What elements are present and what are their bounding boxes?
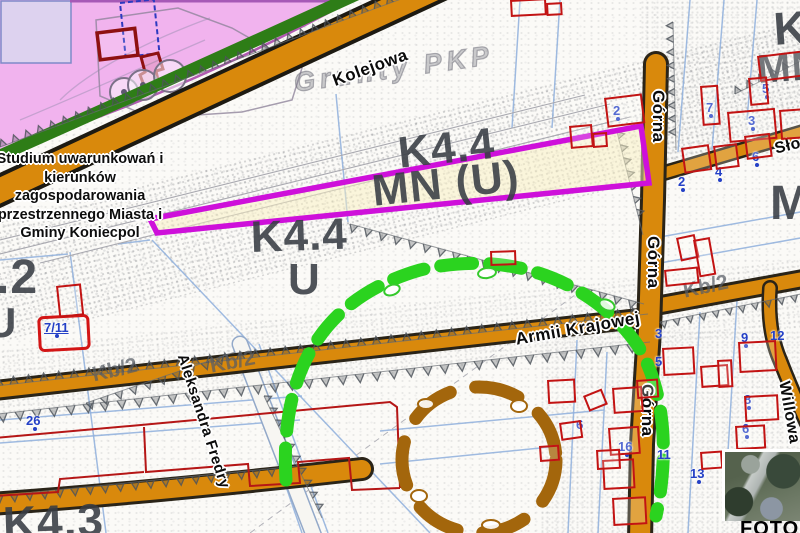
zone-label: K4.4 xyxy=(250,213,348,260)
building-outline xyxy=(700,450,723,469)
attribution-line: kierunków xyxy=(0,169,196,188)
zone-label: .2 xyxy=(0,254,38,302)
building-outline xyxy=(546,2,563,16)
building-outline xyxy=(664,266,700,286)
zone-label: U xyxy=(0,302,17,344)
building-outline xyxy=(490,250,517,266)
building-outline xyxy=(592,132,608,148)
street-label-armii-krajowej: Armii Krajowej xyxy=(514,308,642,350)
building-outline xyxy=(604,93,645,127)
building-outline xyxy=(583,389,608,412)
zone-label: U xyxy=(288,258,321,302)
road-class-label: Kb/2 xyxy=(90,354,140,388)
building-outline xyxy=(717,359,733,388)
building-outline xyxy=(744,133,773,160)
building-outline xyxy=(700,85,721,126)
building-outline xyxy=(612,496,647,526)
building-outline xyxy=(596,449,621,470)
building-outline xyxy=(510,0,547,17)
parcel-number: 26 xyxy=(26,413,40,428)
road-class-label: Kb/2 xyxy=(208,346,257,378)
building-outline xyxy=(738,340,778,373)
building-outline xyxy=(713,143,740,170)
attribution-line: przestrzennego Miasta i xyxy=(0,206,196,225)
street-label-gorna-mid: Górna xyxy=(643,236,663,289)
zone-label: MN (U) xyxy=(370,155,522,214)
parcel-number: 7/11 xyxy=(44,320,69,335)
building-outline xyxy=(744,394,779,422)
parcel-point xyxy=(755,163,759,167)
building-outline xyxy=(569,124,594,149)
building-outline xyxy=(735,424,766,450)
building-outline xyxy=(748,76,769,106)
parcel-point xyxy=(718,178,722,182)
building-outline xyxy=(662,346,695,376)
parcel-number: 2 xyxy=(678,174,685,189)
aerial-photo xyxy=(722,449,800,521)
building-outline xyxy=(636,378,659,398)
labels-layer: Studium uwarunkowań ikierunkówzagospodar… xyxy=(0,0,800,533)
parcel-number: 3 xyxy=(655,326,662,341)
building-outline xyxy=(559,420,583,441)
parcel-point xyxy=(697,480,701,484)
building-outline xyxy=(547,379,576,404)
map-root[interactable]: Studium uwarunkowań ikierunkówzagospodar… xyxy=(0,0,800,533)
building-outline xyxy=(779,108,800,140)
photo-label: FOTO xyxy=(740,518,800,533)
building-outline xyxy=(56,283,84,317)
parcel-number: 5 xyxy=(655,354,662,369)
parcel-point xyxy=(33,427,37,431)
attribution-text: Studium uwarunkowań ikierunkówzagospodar… xyxy=(0,150,196,243)
zone-label: M xyxy=(770,180,800,228)
attribution-line: Gminy Koniecpol xyxy=(0,224,196,243)
zone-label: K4.3 xyxy=(2,496,105,533)
building-outline xyxy=(539,445,560,462)
attribution-line: Studium uwarunkowań i xyxy=(0,150,196,169)
aerial-photo-thumbnail[interactable]: FOTO xyxy=(722,449,800,533)
attribution-line: zagospodarowania xyxy=(0,187,196,206)
parcel-point xyxy=(681,188,685,192)
building-outline xyxy=(681,144,712,174)
street-label-gorna-top: Górna xyxy=(648,90,668,143)
parcel-number: 11 xyxy=(657,447,671,462)
